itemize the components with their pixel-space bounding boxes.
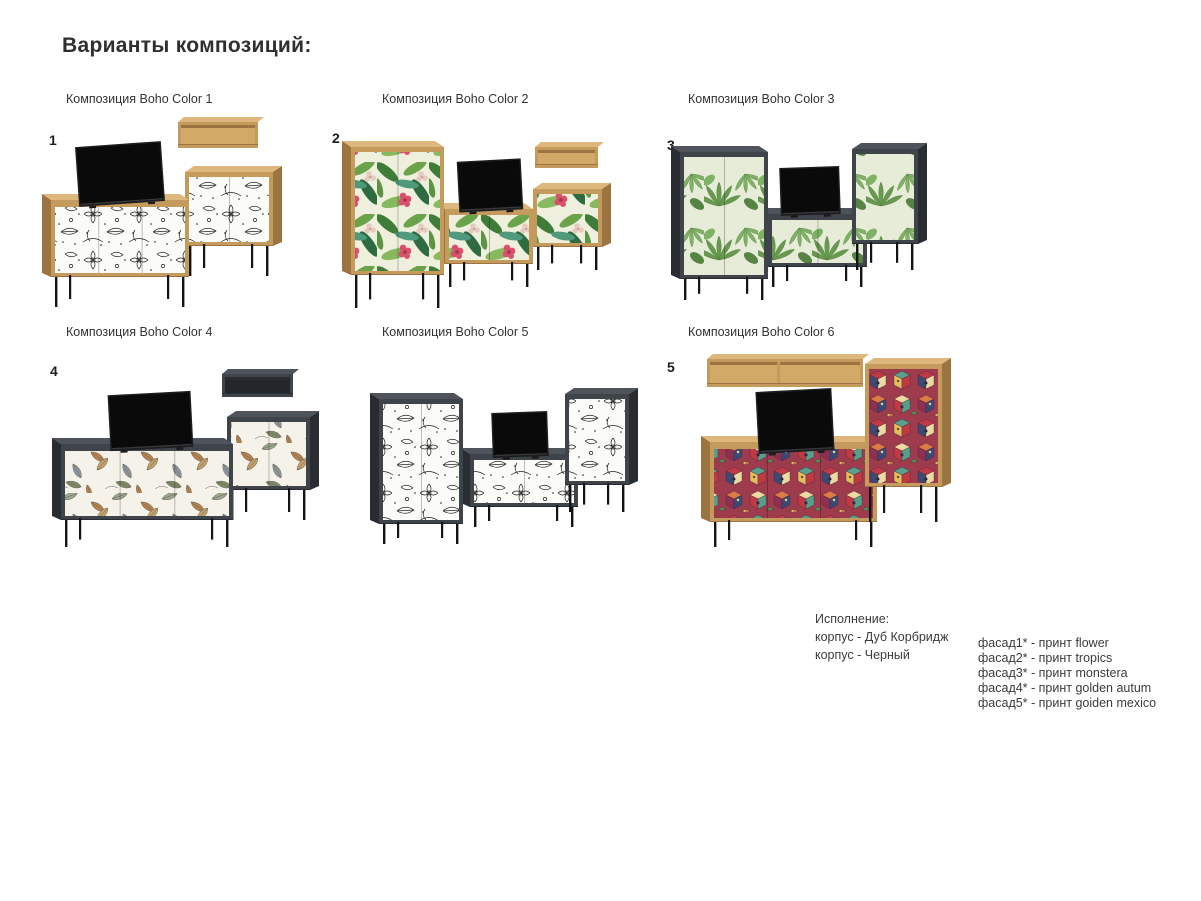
wall-shelf — [535, 142, 604, 168]
legend-body-line: корпус - Дуб Корбридж — [815, 628, 948, 646]
composition-2-render — [325, 110, 645, 322]
tv — [108, 391, 194, 453]
tv-stand — [42, 194, 189, 307]
composition-5-label: Композиция Boho Color 5 — [382, 325, 528, 339]
tv-stand — [701, 436, 877, 547]
composition-6-label: Композиция Boho Color 6 — [688, 325, 834, 339]
tv — [491, 411, 549, 460]
composition-2-label: Композиция Boho Color 2 — [382, 92, 528, 106]
legend-body-finish: Исполнение: корпус - Дуб Корбридж корпус… — [815, 610, 948, 664]
catalog-page: Варианты композиций: — [0, 0, 1201, 901]
composition-5: Композиция Boho Color 5 — [325, 321, 645, 566]
tall-cabinet — [227, 411, 319, 520]
wall-shelf — [178, 117, 264, 148]
legend-body-line: корпус - Черный — [815, 646, 948, 664]
legend-title: Исполнение: — [815, 610, 948, 628]
composition-4: Композиция Boho Color 4 4 — [35, 321, 355, 566]
composition-3-render — [650, 110, 970, 322]
composition-4-render — [35, 343, 355, 555]
legend-facade-line: фасад3* - принт monstera — [978, 666, 1156, 681]
legend-facade-line: фасад2* - принт tropics — [978, 651, 1156, 666]
legend-facade-prints: фасад1* - принт flower фасад2* - принт t… — [978, 636, 1156, 711]
legend-facade-line: фасад1* - принт flower — [978, 636, 1156, 651]
page-title: Варианты композиций: — [62, 34, 312, 58]
tv-stand — [533, 183, 611, 270]
wall-shelf — [707, 354, 869, 387]
tall-cabinet — [342, 141, 444, 308]
composition-6-render — [650, 343, 970, 555]
tv — [755, 388, 834, 456]
tall-cabinet — [671, 146, 768, 300]
legend-facade-line: фасад4* - принт golden autum — [978, 681, 1156, 696]
tv — [779, 166, 841, 218]
tall-cabinet — [370, 393, 463, 544]
tv-stand — [759, 208, 867, 287]
legend-facade-line: фасад5* - принт goiden mexico — [978, 696, 1156, 711]
composition-2: Композиция Boho Color 2 2 — [325, 88, 645, 333]
composition-4-label: Композиция Boho Color 4 — [66, 325, 212, 339]
tv-stand — [436, 203, 533, 287]
wall-shelf — [222, 369, 299, 397]
composition-3-label: Композиция Boho Color 3 — [688, 92, 834, 106]
composition-1: Композиция Boho Color 1 1 — [35, 88, 355, 333]
tv-stand — [52, 438, 233, 547]
tall-cabinet — [185, 166, 282, 276]
composition-6: Композиция Boho Color 6 5 — [650, 321, 970, 566]
composition-1-render — [35, 110, 355, 322]
tv — [75, 141, 165, 209]
composition-1-label: Композиция Boho Color 1 — [66, 92, 212, 106]
tv-stand — [461, 448, 578, 527]
composition-5-render — [325, 343, 645, 555]
composition-3: Композиция Boho Color 3 3 — [650, 88, 970, 333]
tall-cabinet — [865, 358, 951, 522]
tv — [457, 158, 524, 214]
